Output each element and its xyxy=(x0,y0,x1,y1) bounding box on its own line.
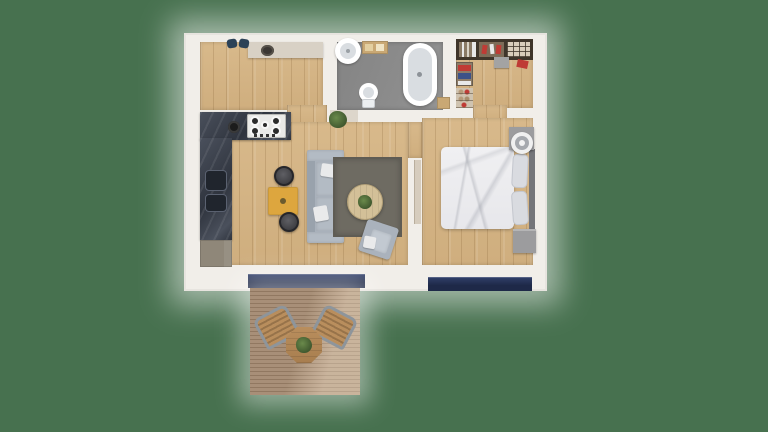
table-centerpiece xyxy=(280,198,286,204)
toilet-tank xyxy=(362,99,375,108)
hob-controls xyxy=(254,134,278,137)
dining-stool-bottom xyxy=(279,212,299,232)
open-door-leaf xyxy=(414,160,421,224)
hanging-clothes-white xyxy=(459,42,476,57)
bed-pillow-1 xyxy=(511,154,529,189)
folded-blue xyxy=(458,73,471,79)
red-garment-2 xyxy=(496,45,502,54)
base-cabinet xyxy=(200,240,232,267)
bench-towel-1 xyxy=(365,44,373,51)
coffee-table-plant xyxy=(358,195,372,209)
floor-plan-scene xyxy=(0,0,768,432)
living-room-plant xyxy=(329,111,347,128)
bedroom-window-strip xyxy=(428,277,532,291)
bed-pillow-2 xyxy=(511,190,529,225)
dining-stool-top xyxy=(274,166,294,186)
armchair-pillow xyxy=(363,235,377,249)
basin-drain xyxy=(346,49,350,53)
navy-stool-1 xyxy=(226,38,237,48)
bathtub-drain xyxy=(417,72,422,77)
deck-table-plant xyxy=(296,337,312,353)
folded-red xyxy=(458,65,471,71)
corner-shelf xyxy=(437,97,450,109)
counter-sink xyxy=(261,45,274,56)
burner-1 xyxy=(250,116,260,126)
red-garment-1 xyxy=(481,45,487,55)
living-bedroom-doorway xyxy=(408,122,422,158)
bench-towel-2 xyxy=(376,44,384,51)
nightstand-bottom xyxy=(513,229,536,253)
outdoor-deck xyxy=(250,288,360,395)
sofa-pillow-2 xyxy=(313,205,329,222)
shoe-shelf xyxy=(456,88,473,108)
folded-clothes-cubby xyxy=(456,62,473,86)
black-pot xyxy=(228,121,240,133)
storage-box xyxy=(494,57,509,68)
white-garment xyxy=(489,44,494,54)
navy-stool-2 xyxy=(238,38,249,49)
bed-duvet xyxy=(441,147,514,229)
bath-bench xyxy=(362,41,388,54)
shoe-cubby-grid xyxy=(507,42,530,57)
headboard xyxy=(529,149,535,231)
living-glass-slider xyxy=(248,274,365,288)
kitchen-sink-basin-1 xyxy=(205,170,227,191)
burner-5-center xyxy=(261,121,269,129)
gas-hob xyxy=(247,114,286,138)
apartment-building-footprint xyxy=(184,33,547,291)
hanging-clothes-red-section xyxy=(479,42,504,57)
folded-white xyxy=(458,81,471,85)
table-fan-hub xyxy=(519,140,525,146)
kitchen-sink-basin-2 xyxy=(205,194,227,212)
toilet-seat xyxy=(363,87,374,98)
stone-counter xyxy=(248,42,323,58)
burner-2 xyxy=(271,116,281,126)
yellow-dining-table xyxy=(268,187,298,215)
sofa-backrest xyxy=(307,161,315,232)
